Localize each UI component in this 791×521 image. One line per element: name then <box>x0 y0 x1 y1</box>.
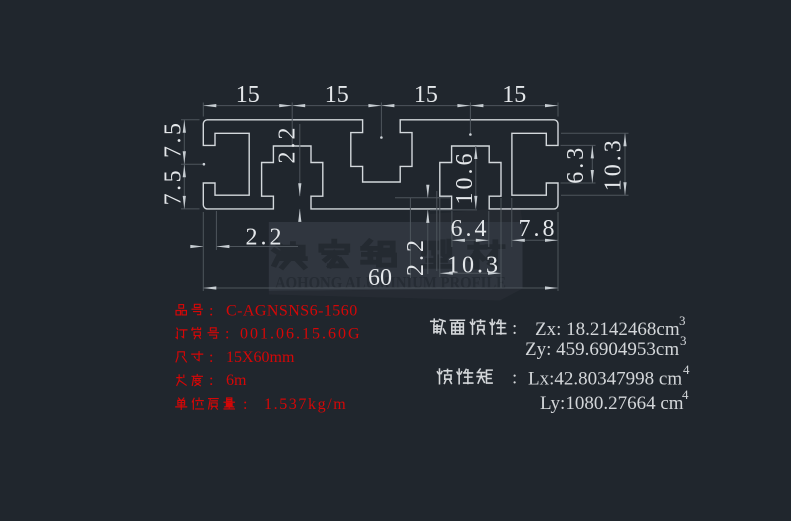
svg-text:10.3: 10.3 <box>601 137 627 191</box>
svg-text:2.2: 2.2 <box>403 237 429 276</box>
svg-text::: : <box>512 318 517 339</box>
svg-text:6.3: 6.3 <box>563 145 589 184</box>
svg-text:6.4: 6.4 <box>451 216 490 242</box>
svg-text:Ly:1080.27664 cm: Ly:1080.27664 cm <box>540 393 684 414</box>
svg-text:60: 60 <box>368 265 392 291</box>
svg-text:15: 15 <box>236 82 260 108</box>
svg-text:15: 15 <box>414 82 438 108</box>
svg-text:Lx:42.80347998 cm: Lx:42.80347998 cm <box>528 369 682 390</box>
svg-text:C-AGNSNS6-1560: C-AGNSNS6-1560 <box>226 302 358 319</box>
svg-text:3: 3 <box>679 313 686 328</box>
svg-text:15: 15 <box>325 82 349 108</box>
svg-text:6m: 6m <box>226 372 247 389</box>
svg-text::: : <box>209 302 213 319</box>
svg-text:4: 4 <box>683 362 690 377</box>
svg-text:10.6: 10.6 <box>452 151 478 205</box>
svg-text:001.06.15.60G: 001.06.15.60G <box>240 326 362 343</box>
svg-text:2.2: 2.2 <box>246 225 285 251</box>
svg-text:7.5: 7.5 <box>161 168 187 206</box>
svg-text:10.3: 10.3 <box>447 253 501 279</box>
svg-text:3: 3 <box>680 333 687 348</box>
svg-text::: : <box>243 396 247 413</box>
svg-text::: : <box>209 349 213 366</box>
svg-text:15: 15 <box>502 82 526 108</box>
svg-text:7.8: 7.8 <box>519 216 558 242</box>
svg-text:2.2: 2.2 <box>275 125 301 164</box>
svg-text::: : <box>209 372 213 389</box>
svg-text:1.537kg/m: 1.537kg/m <box>264 396 347 413</box>
svg-text::: : <box>225 326 229 343</box>
svg-text::: : <box>512 368 517 389</box>
svg-text:4: 4 <box>682 387 689 402</box>
svg-text:Zx: 18.2142468cm: Zx: 18.2142468cm <box>535 319 680 340</box>
svg-text:Zy: 459.6904953cm: Zy: 459.6904953cm <box>525 339 679 360</box>
svg-text:15X60mm: 15X60mm <box>226 349 295 366</box>
svg-text:7.5: 7.5 <box>161 121 187 159</box>
